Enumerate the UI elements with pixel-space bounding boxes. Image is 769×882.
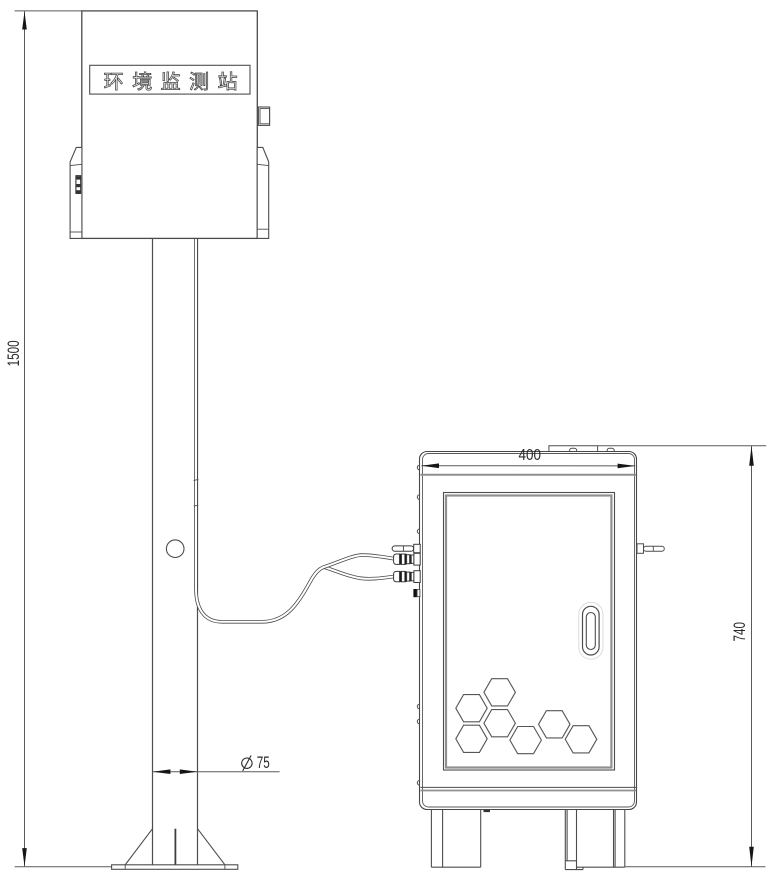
svg-text:1500: 1500 bbox=[5, 340, 23, 366]
svg-text:740: 740 bbox=[731, 622, 749, 642]
svg-text:400: 400 bbox=[519, 447, 542, 464]
svg-text:75: 75 bbox=[257, 754, 270, 772]
